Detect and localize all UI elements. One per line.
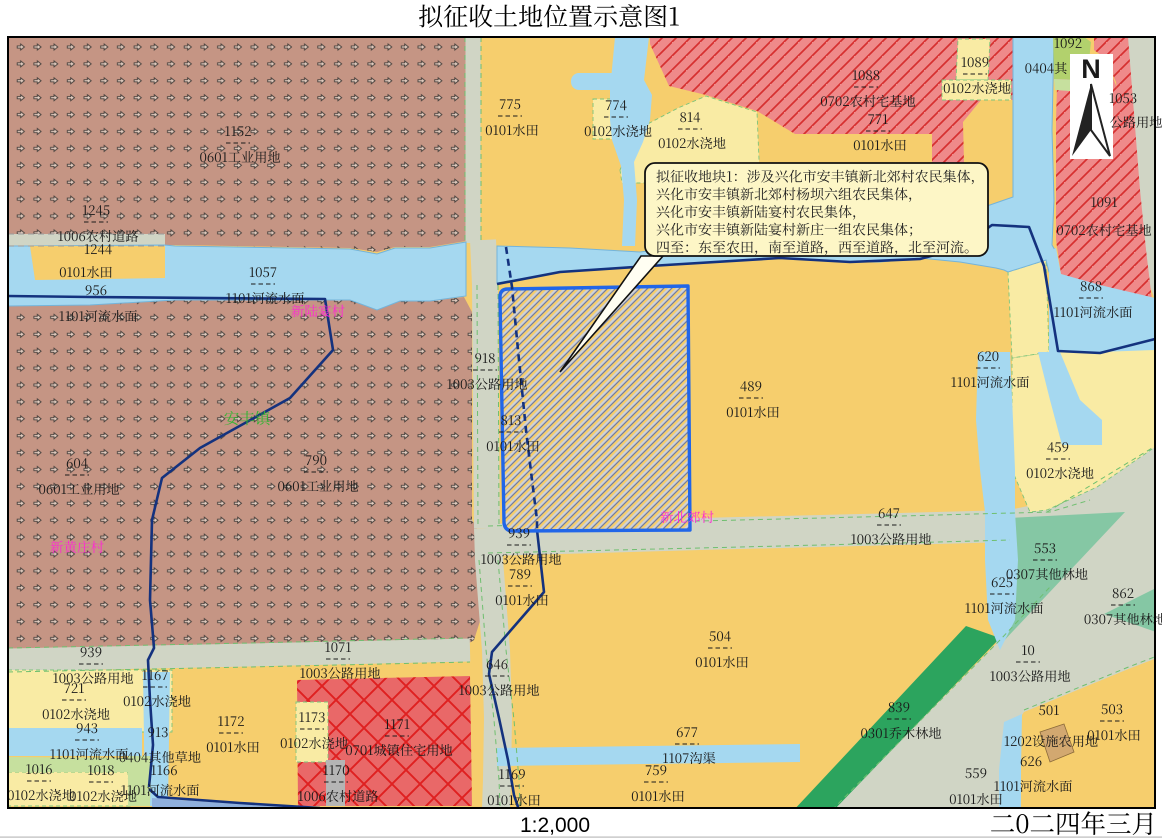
svg-text:1:2,000: 1:2,000 bbox=[520, 814, 590, 837]
svg-text:N: N bbox=[1081, 54, 1101, 84]
